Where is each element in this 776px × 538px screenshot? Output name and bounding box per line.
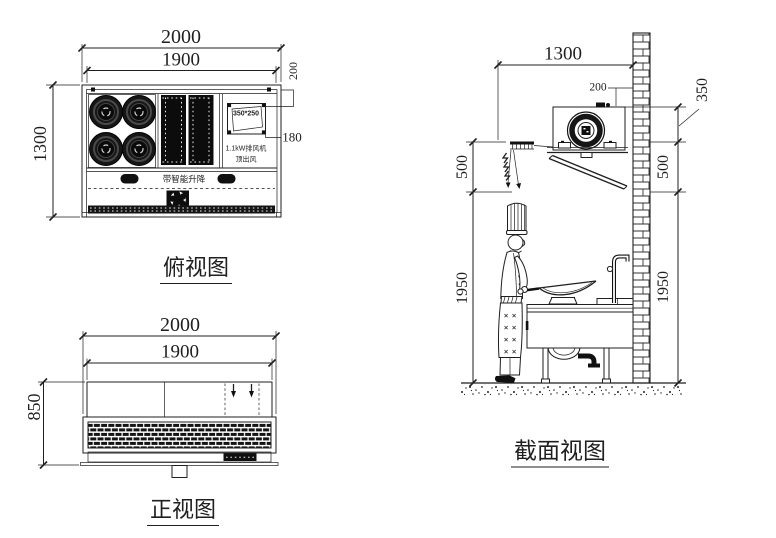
light-fixture xyxy=(510,142,553,150)
fan-motor xyxy=(123,133,156,166)
ground-hatch xyxy=(461,384,683,396)
drawing-canvas xyxy=(0,0,776,538)
wok xyxy=(524,281,596,304)
fan-motor xyxy=(123,96,156,129)
chef-apron xyxy=(499,303,523,358)
texture-strip xyxy=(88,206,275,214)
outlet-box xyxy=(228,104,266,135)
drain-pipe xyxy=(578,356,600,368)
section-view-dim-hood-width: 1300 xyxy=(544,45,582,64)
top-view-dim-width-inner: 1900 xyxy=(162,50,200,69)
hood-fan xyxy=(568,112,605,149)
bottom-tab xyxy=(172,466,187,478)
brick-wall xyxy=(633,33,650,383)
lift-feature-label: 带智能升降 xyxy=(163,174,206,183)
hood-upper-body xyxy=(87,382,272,417)
hood-lower-body xyxy=(81,417,279,478)
front-view-drawing xyxy=(38,331,280,478)
front-view-dim-width-outer: 2000 xyxy=(160,315,200,335)
section-view-dim-above-hood: 350 xyxy=(695,78,711,102)
front-view-dim-width-inner: 1900 xyxy=(161,342,199,361)
top-view-dim-offset-duct: 200 xyxy=(287,62,299,80)
top-view-title: 俯视图 xyxy=(160,255,232,284)
top-view-dim-depth: 1300 xyxy=(31,126,49,162)
chef-head xyxy=(508,235,523,250)
section-view-dim-hood-height-left: 500 xyxy=(455,155,471,179)
burner-dome xyxy=(548,348,580,359)
chef-shoe xyxy=(495,376,516,383)
air-outlet-label: 顶出风 xyxy=(236,156,257,163)
top-view-dim-width-outer: 2000 xyxy=(161,27,201,47)
fan-motor xyxy=(90,133,123,166)
outlet-size-label: 350*250 xyxy=(233,110,259,117)
section-view-dim-hood-height-right: 500 xyxy=(656,155,672,179)
section-view-title: 截面视图 xyxy=(511,439,609,468)
exhaust-hood xyxy=(503,103,628,190)
hood-baffle xyxy=(549,156,627,190)
fan-spec-label: 1.1kW排风机 xyxy=(226,145,267,152)
section-view-dim-floor-left: 1950 xyxy=(455,272,471,304)
lift-handle-right xyxy=(218,174,236,184)
top-view-dim-offset-box: 180 xyxy=(282,130,302,143)
chef-figure xyxy=(495,203,528,383)
faucet xyxy=(607,257,627,304)
mesh-grille xyxy=(88,422,271,448)
section-view-dim-duct-to-wall: 200 xyxy=(589,82,606,94)
front-view-dim-height: 850 xyxy=(25,394,43,421)
section-view-dim-floor-right: 1950 xyxy=(656,271,672,303)
drawing-sheet: { "top_view": { "title": "俯视图", "dim_wid… xyxy=(0,0,776,538)
stove-table xyxy=(526,257,633,384)
top-view-drawing xyxy=(46,44,294,221)
fan-motor xyxy=(90,96,123,129)
front-view-title: 正视图 xyxy=(147,497,219,526)
chef-hat xyxy=(508,203,527,230)
lift-handle-left xyxy=(121,174,139,184)
section-view-drawing xyxy=(461,33,699,396)
